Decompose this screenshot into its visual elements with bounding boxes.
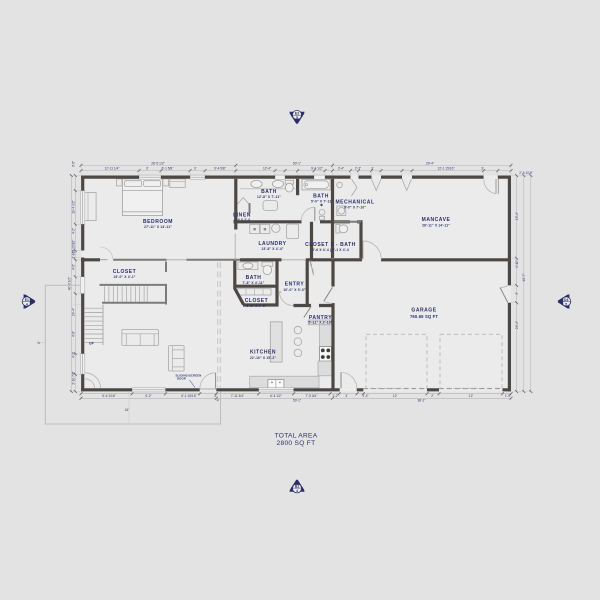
svg-text:760.65 SQ FT: 760.65 SQ FT [410, 314, 438, 319]
svg-text:2': 2' [431, 394, 434, 398]
svg-text:9'-0" X 7'-10": 9'-0" X 7'-10" [344, 206, 366, 210]
svg-text:1'-2": 1'-2" [332, 394, 338, 398]
svg-text:3': 3' [345, 394, 348, 398]
svg-text:5'-11" X 2'-10": 5'-11" X 2'-10" [309, 321, 333, 325]
svg-text:4'-6": 4'-6" [72, 331, 76, 337]
svg-text:5'-0" X 7'-11": 5'-0" X 7'-11" [311, 200, 333, 204]
svg-text:5'-4 1/16": 5'-4 1/16" [102, 394, 115, 398]
svg-text:LAUNDRY: LAUNDRY [258, 241, 286, 247]
svg-text:3'-4": 3'-4" [338, 167, 344, 171]
svg-text:28'-5 1/2": 28'-5 1/2" [151, 161, 164, 165]
svg-text:10'-0" X 9'-3": 10'-0" X 9'-3" [283, 288, 305, 292]
svg-text:3'-6": 3'-6" [72, 161, 76, 167]
svg-text:12'-4": 12'-4" [263, 167, 271, 171]
svg-text:4: 4 [296, 489, 298, 493]
svg-text:24'-4": 24'-4" [515, 321, 519, 329]
svg-text:15'-4": 15'-4" [515, 212, 519, 220]
svg-text:13'-8" X 4'-4": 13'-8" X 4'-4" [261, 247, 283, 251]
svg-text:KITCHEN: KITCHEN [250, 350, 276, 356]
svg-text:9'-4 5/8": 9'-4 5/8" [214, 167, 226, 171]
svg-text:7'-9 3/4": 7'-9 3/4" [306, 394, 318, 398]
svg-text:B1: B1 [295, 485, 299, 489]
svg-text:40'-7": 40'-7" [522, 273, 526, 281]
svg-text:4'-0": 4'-0" [72, 264, 76, 270]
svg-text:BEDROOM: BEDROOM [143, 219, 173, 225]
svg-text:9'-4 1/2": 9'-4 1/2" [311, 167, 323, 171]
svg-text:1'-9": 1'-9" [505, 394, 511, 398]
svg-text:E3: E3 [295, 112, 299, 116]
svg-text:D4: D4 [564, 298, 568, 302]
svg-text:2': 2' [214, 394, 217, 398]
svg-text:4'-11": 4'-11" [515, 260, 519, 268]
svg-text:6': 6' [37, 341, 41, 344]
svg-text:3': 3' [194, 167, 197, 171]
svg-text:15'-0" X 4'-1": 15'-0" X 4'-1" [113, 275, 135, 279]
svg-text:DOOR: DOOR [177, 377, 186, 381]
svg-text:3': 3' [146, 167, 149, 171]
svg-text:4': 4' [217, 399, 220, 403]
svg-text:3'-10 7/8": 3'-10 7/8" [72, 371, 76, 384]
svg-text:28'-11" X 14'-11": 28'-11" X 14'-11" [422, 224, 450, 228]
svg-text:6'-1 15/16": 6'-1 15/16" [181, 394, 196, 398]
svg-text:5: 5 [565, 303, 567, 307]
svg-text:12': 12' [469, 394, 474, 398]
svg-text:24'-4": 24'-4" [72, 308, 76, 316]
svg-text:50'-1": 50'-1" [293, 161, 301, 165]
svg-text:3': 3' [515, 292, 519, 295]
svg-text:4'-2": 4'-2" [72, 228, 76, 234]
svg-text:6'-4 1/2": 6'-4 1/2" [270, 394, 282, 398]
svg-text:2'-9 X 2'-0: 2'-9 X 2'-0 [234, 218, 251, 222]
svg-text:12'-1 15/16": 12'-1 15/16" [438, 167, 455, 171]
svg-text:22'-10" X 15'-2": 22'-10" X 15'-2" [250, 356, 276, 360]
svg-text:12'-8" X 7'-11": 12'-8" X 7'-11" [257, 195, 281, 199]
svg-text:6'-1 5/8": 6'-1 5/8" [162, 167, 174, 171]
svg-text:29'-4": 29'-4" [426, 161, 434, 165]
svg-text:19'-4 1/2": 19'-4 1/2" [72, 200, 76, 213]
svg-text:4'-2": 4'-2" [72, 352, 76, 358]
svg-text:MANCAVE: MANCAVE [422, 217, 451, 223]
svg-text:16': 16' [125, 408, 130, 412]
svg-text:50'-1": 50'-1" [293, 398, 301, 402]
svg-text:7'-11 3/4": 7'-11 3/4" [231, 394, 244, 398]
svg-text:1'-10": 1'-10" [72, 250, 76, 258]
svg-text:12': 12' [393, 394, 398, 398]
svg-text:3': 3' [481, 167, 484, 171]
svg-text:E1: E1 [25, 298, 29, 302]
svg-text:2'-6 1/16": 2'-6 1/16" [519, 171, 532, 175]
svg-text:ENTRY: ENTRY [285, 282, 305, 288]
svg-text:GARAGE: GARAGE [411, 308, 436, 314]
svg-text:1'-4": 1'-4" [362, 394, 368, 398]
svg-text:40'-3 1/2": 40'-3 1/2" [68, 277, 72, 290]
svg-text:4: 4 [26, 303, 28, 307]
svg-text:7'-8" X 4'-11": 7'-8" X 4'-11" [242, 281, 264, 285]
svg-text:12'-11 1/4": 12'-11 1/4" [105, 167, 120, 171]
svg-text:6'-1" X 4'-5": 6'-1" X 4'-5" [246, 304, 266, 308]
svg-text:UP: UP [89, 342, 94, 346]
svg-text:27'-11" X 14'-11": 27'-11" X 14'-11" [144, 225, 172, 229]
svg-text:6'-2": 6'-2" [145, 394, 151, 398]
svg-text:2'-7": 2'-7" [355, 167, 361, 171]
svg-text:TOTAL AREA: TOTAL AREA [275, 433, 318, 440]
svg-text:38'-1": 38'-1" [417, 399, 425, 403]
svg-text:2800 SQ FT: 2800 SQ FT [277, 440, 316, 447]
svg-text:3'-6 X 4'-4 | 4'-1 X 4'-4: 3'-6 X 4'-4 | 4'-1 X 4'-4 [312, 248, 349, 252]
svg-text:3': 3' [371, 167, 374, 171]
